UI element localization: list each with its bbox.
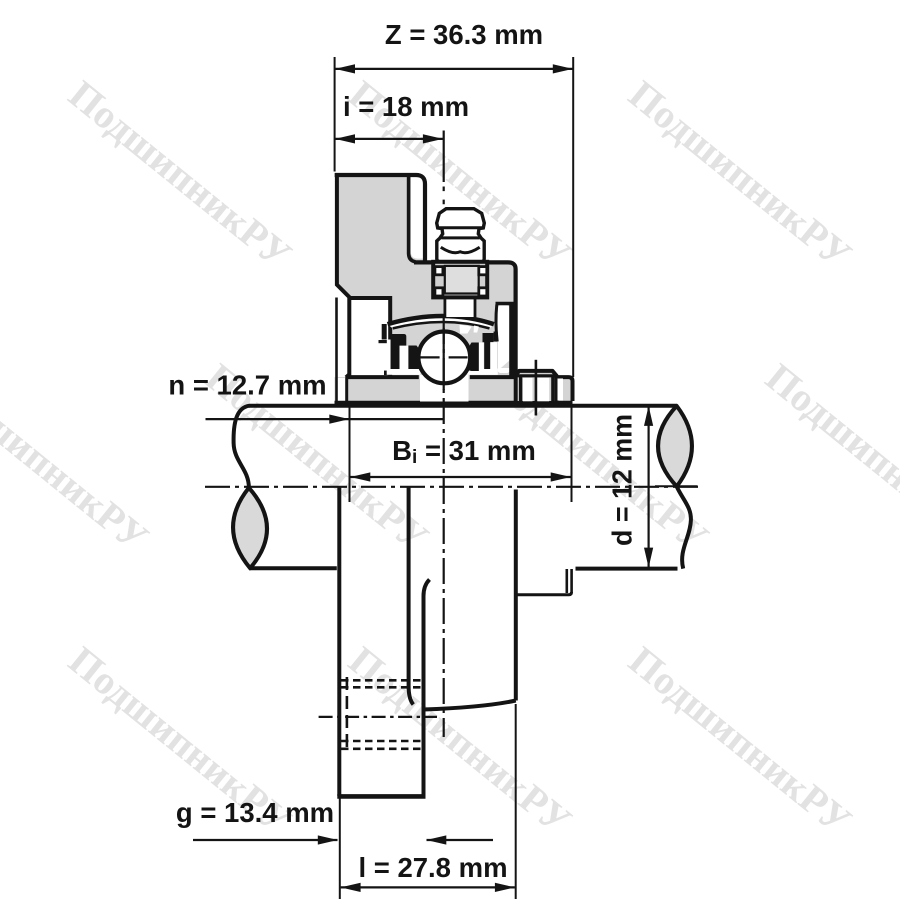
- svg-text:l = 27.8 mm: l = 27.8 mm: [358, 852, 507, 883]
- svg-text:d = 12 mm: d = 12 mm: [607, 414, 638, 546]
- svg-text:Z = 36.3 mm: Z = 36.3 mm: [385, 19, 543, 50]
- svg-text:i = 18 mm: i = 18 mm: [343, 91, 469, 122]
- svg-text:g = 13.4 mm: g = 13.4 mm: [176, 797, 334, 828]
- svg-text:n = 12.7 mm: n = 12.7 mm: [168, 370, 326, 401]
